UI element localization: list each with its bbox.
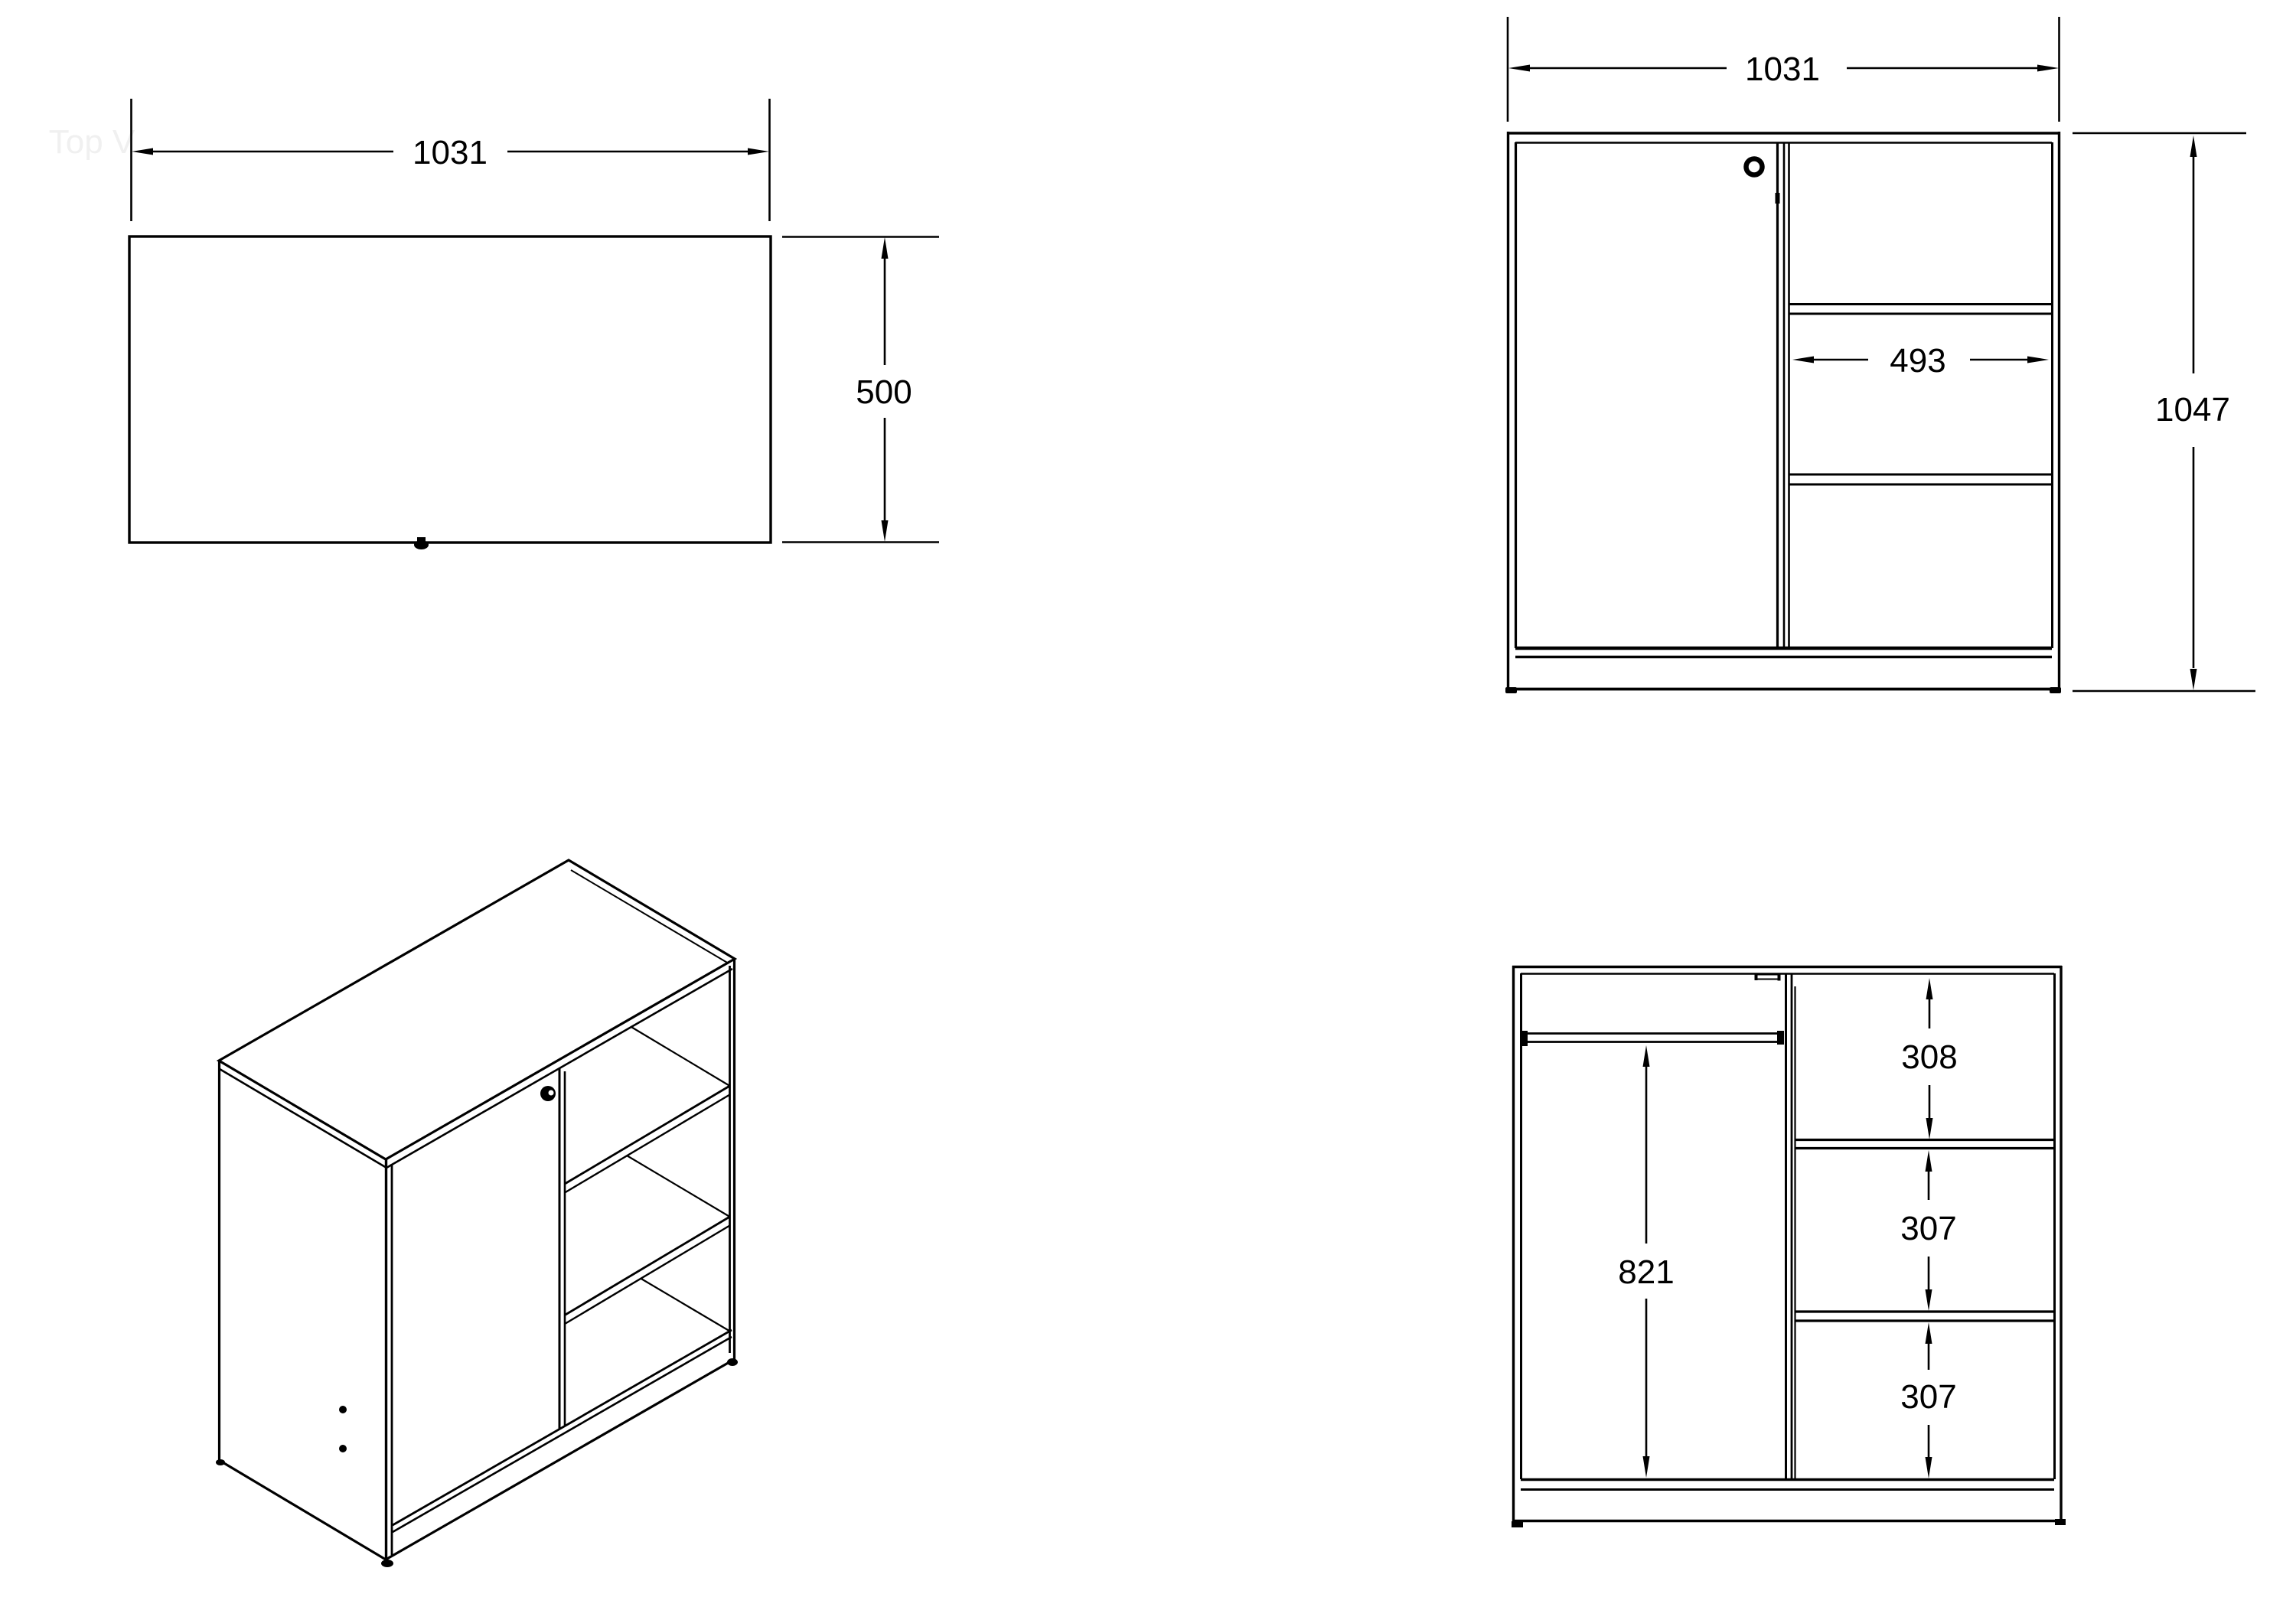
svg-text:493: 493 bbox=[1890, 342, 1945, 380]
svg-text:307: 307 bbox=[1900, 1378, 1956, 1416]
svg-text:Top V: Top V bbox=[49, 123, 135, 161]
svg-text:1047: 1047 bbox=[2155, 391, 2230, 429]
svg-text:307: 307 bbox=[1900, 1210, 1956, 1247]
svg-text:308: 308 bbox=[1901, 1038, 1957, 1076]
svg-text:1031: 1031 bbox=[413, 134, 488, 171]
svg-text:500: 500 bbox=[856, 373, 912, 411]
svg-text:821: 821 bbox=[1618, 1253, 1674, 1291]
svg-text:1031: 1031 bbox=[1745, 51, 1820, 88]
